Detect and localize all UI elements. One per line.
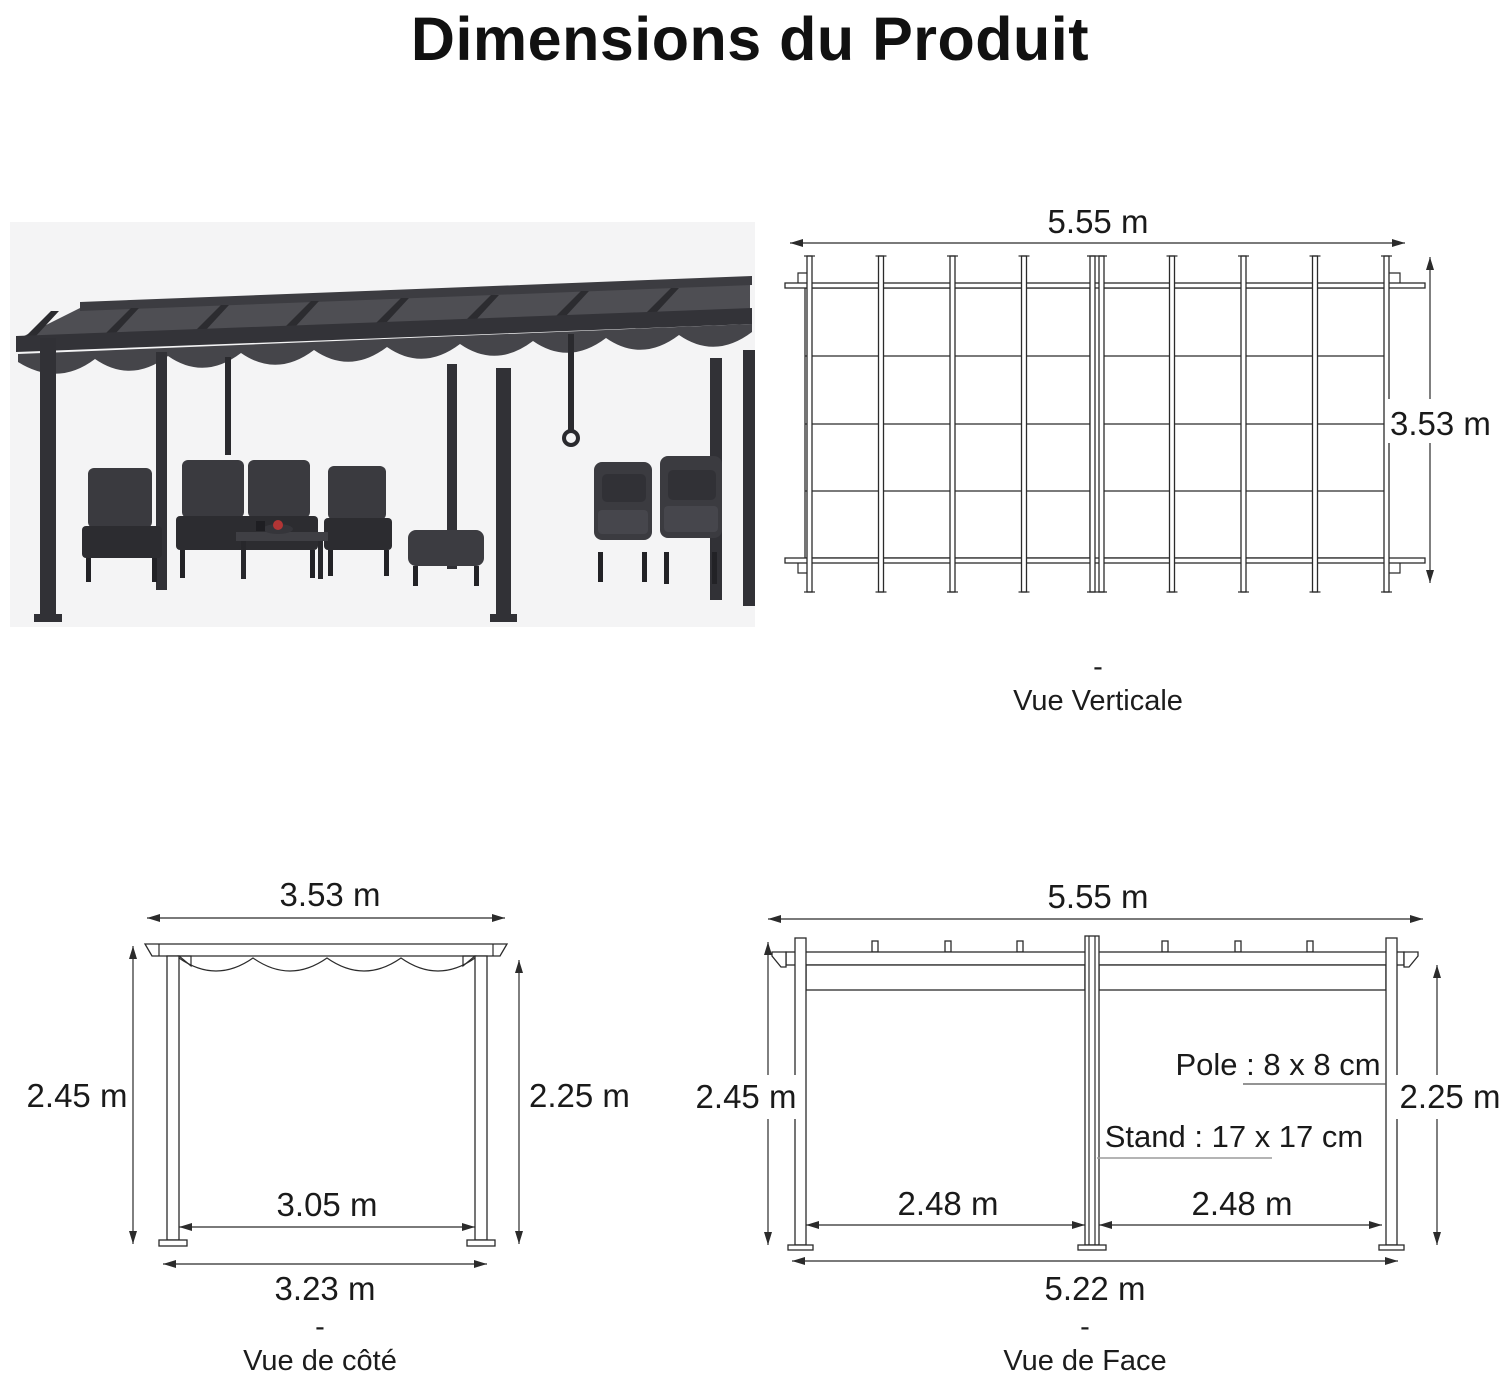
front-view-drawing: 5.55 m 2.45 m <box>660 870 1500 1310</box>
product-photo <box>10 222 755 627</box>
front-view-right-dimension: 2.25 m <box>1396 965 1500 1245</box>
front-view-base-dimension: 5.22 m <box>792 1261 1398 1307</box>
front-foot-right <box>1379 1245 1404 1250</box>
side-view-left-dimension: 2.45 m <box>27 946 133 1244</box>
caption-dash: - <box>120 1312 520 1342</box>
caption-text: Vue de côté <box>120 1344 520 1375</box>
side-post-right <box>475 956 487 1240</box>
front-view-base-label: 5.22 m <box>1045 1270 1146 1307</box>
canopy-panel-left <box>805 288 1090 558</box>
front-post-right <box>1386 938 1397 1245</box>
side-view-base-label: 3.23 m <box>275 1270 376 1305</box>
side-view-top-label: 3.53 m <box>280 876 381 913</box>
caption-dash: - <box>885 1312 1285 1342</box>
stand-size-label: Stand : 17 x 17 cm <box>1105 1119 1363 1154</box>
side-view-inner-label: 3.05 m <box>277 1186 378 1223</box>
front-view-left-label: 2.45 m <box>696 1078 797 1115</box>
pole-annotation: Pole : 8 x 8 cm <box>1175 1047 1386 1084</box>
red-decor-item <box>273 520 283 530</box>
side-view-base-dimension: 3.23 m <box>163 1264 487 1305</box>
side-view-left-label: 2.45 m <box>27 1077 128 1114</box>
caption-dash: - <box>898 652 1298 682</box>
top-view-width-dimension: 5.55 m <box>790 203 1405 243</box>
side-foot-left <box>159 1240 187 1246</box>
page-title: Dimensions du Produit <box>0 4 1500 74</box>
front-canopy-right <box>1099 965 1386 990</box>
side-view-inner-dimension: 3.05 m <box>179 1186 475 1227</box>
front-foot-left <box>788 1245 813 1250</box>
product-dimensions-sheet: Dimensions du Produit <box>0 0 1500 1375</box>
top-view-depth-dimension: 3.53 m <box>1386 257 1500 583</box>
caption-text: Vue Verticale <box>898 684 1298 718</box>
front-view-bay-right-dimension: 2.48 m <box>1099 1185 1382 1225</box>
side-view-top-dimension: 3.53 m <box>147 876 505 918</box>
pole-size-label: Pole : 8 x 8 cm <box>1175 1047 1380 1082</box>
front-foot-middle <box>1078 1245 1106 1250</box>
stand-annotation: Stand : 17 x 17 cm <box>1097 1119 1363 1158</box>
front-view-top-dimension: 5.55 m <box>768 878 1423 919</box>
front-view-top-label: 5.55 m <box>1048 878 1149 915</box>
side-view-right-label: 2.25 m <box>529 1077 630 1114</box>
front-canopy-left <box>806 965 1085 990</box>
top-view-drawing: 5.55 m <box>770 195 1500 620</box>
bay-right-label: 2.48 m <box>1192 1185 1293 1222</box>
canopy-scallops <box>179 958 475 971</box>
front-view-left-dimension: 2.45 m <box>694 942 798 1245</box>
side-view-drawing: 3.53 m 2.45 m 2.25 m 3.05 m 3.23 m <box>20 870 660 1305</box>
side-foot-right <box>467 1240 495 1246</box>
bay-left-label: 2.48 m <box>898 1185 999 1222</box>
side-post-left <box>167 956 179 1240</box>
caption-text: Vue de Face <box>885 1344 1285 1375</box>
top-view-depth-label: 3.53 m <box>1390 405 1491 442</box>
side-beam <box>145 944 507 956</box>
front-beam-cap-right <box>1404 952 1418 967</box>
front-view-right-label: 2.25 m <box>1400 1078 1500 1115</box>
front-view-caption: - Vue de Face <box>885 1312 1285 1375</box>
ottoman <box>408 530 484 566</box>
side-view-caption: - Vue de côté <box>120 1312 520 1375</box>
front-post-middle <box>1085 936 1099 1245</box>
side-view-right-dimension: 2.25 m <box>519 960 630 1244</box>
front-view-bay-left-dimension: 2.48 m <box>806 1185 1085 1225</box>
top-view-width-label: 5.55 m <box>1048 203 1149 240</box>
top-view-caption: - Vue Verticale <box>898 652 1298 718</box>
front-beam-cap-left <box>772 952 786 967</box>
